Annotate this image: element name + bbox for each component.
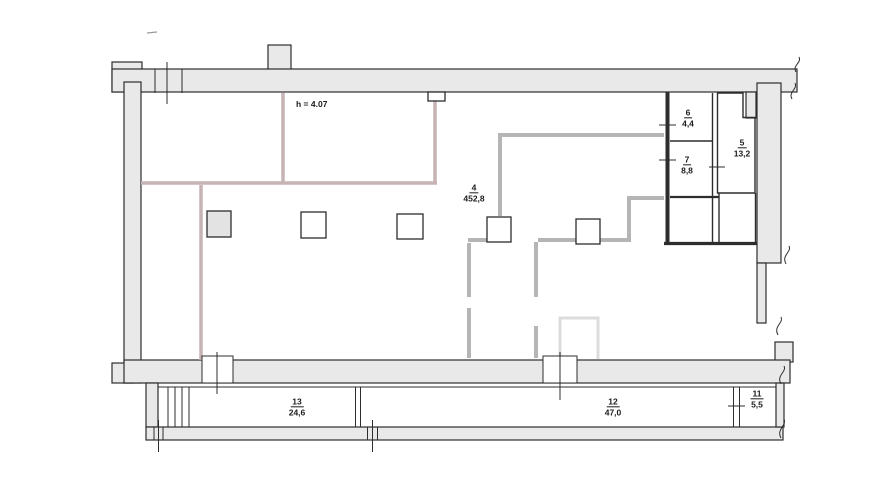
room-area: 4,4 xyxy=(682,119,694,129)
column-3 xyxy=(397,214,423,239)
chimney xyxy=(268,45,291,70)
pink-partitions xyxy=(141,93,437,360)
gray-partitions xyxy=(468,135,664,359)
column-4 xyxy=(487,217,511,242)
columns xyxy=(207,92,600,244)
room-label-5: 5 13,2 xyxy=(734,137,751,158)
room-label-13: 13 24,6 xyxy=(289,396,306,417)
wall-left xyxy=(124,82,141,383)
room-label-12: 12 47,0 xyxy=(605,396,622,417)
room-area: 13,2 xyxy=(734,149,751,159)
partition-light-enclosure xyxy=(560,318,598,359)
room-label-6: 6 4,4 xyxy=(682,107,694,128)
ceiling-height-note: h = 4.07 xyxy=(296,99,327,109)
column-5 xyxy=(576,219,600,244)
stairs-symbol xyxy=(168,387,189,427)
wall-right-mid xyxy=(757,263,766,323)
corridor-wall-bottom xyxy=(146,427,783,440)
room-number: 6 xyxy=(684,107,693,118)
room-number: 7 xyxy=(683,154,692,165)
partition-zigzag-a xyxy=(500,135,664,216)
room-number: 11 xyxy=(751,388,764,399)
break-mark xyxy=(785,246,790,264)
wall-top xyxy=(112,69,797,92)
room-number: 5 xyxy=(738,137,747,148)
column-2 xyxy=(301,212,326,238)
door-openings xyxy=(154,125,745,452)
room-area: 8,8 xyxy=(681,166,693,176)
corridor-wall-left xyxy=(146,383,158,427)
room-number: 12 xyxy=(606,396,619,407)
room-area: 24,6 xyxy=(289,408,306,418)
wall-notch-room5 xyxy=(746,92,756,118)
room-label-11: 11 5,5 xyxy=(751,388,764,409)
break-mark xyxy=(777,317,782,335)
partition-zigzag-b xyxy=(538,198,664,240)
room-label-4: 4 452,8 xyxy=(463,182,484,203)
pilaster xyxy=(428,92,445,101)
room-number: 13 xyxy=(290,396,303,407)
floor-plan-drawing xyxy=(0,0,895,484)
room-number: 4 xyxy=(470,182,479,193)
room-label-7: 7 8,8 xyxy=(681,154,693,175)
corridor-wall-right xyxy=(776,383,784,427)
wall-right-lower xyxy=(775,342,793,362)
floor-plan-canvas: h = 4.07 4 452,8 6 4,4 7 8,8 5 13,2 13 2… xyxy=(0,0,895,484)
interior-walls xyxy=(664,92,757,244)
corridor-details xyxy=(158,387,776,427)
column-1 xyxy=(207,211,231,237)
stray-mark xyxy=(147,32,157,33)
room-area: 5,5 xyxy=(751,400,763,410)
room-area: 47,0 xyxy=(605,408,622,418)
wall-right-upper xyxy=(757,83,781,263)
room-area: 452,8 xyxy=(463,194,484,204)
